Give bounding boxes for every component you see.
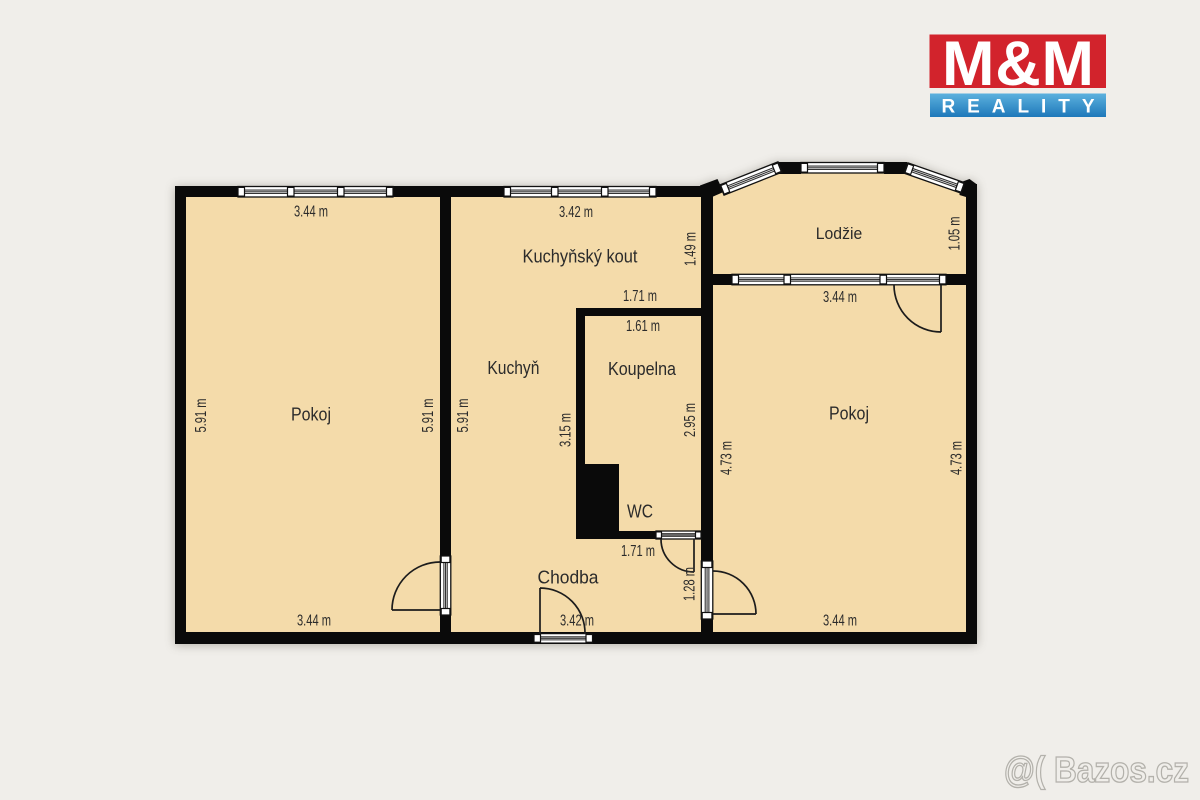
svg-text:M&M: M&M	[942, 29, 1094, 99]
svg-text:@( Bazos.cz: @( Bazos.cz	[1004, 749, 1189, 790]
